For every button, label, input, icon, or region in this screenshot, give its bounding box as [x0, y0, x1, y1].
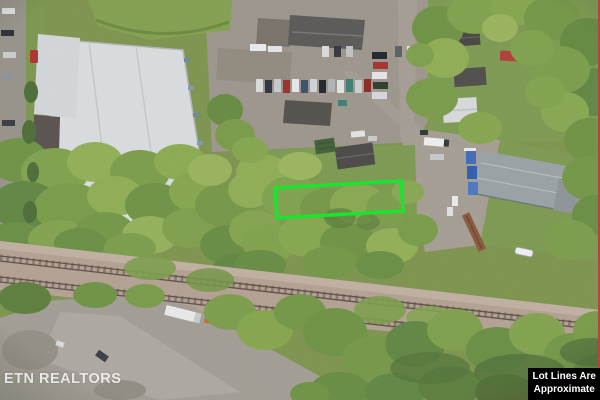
- aerial-photo-svg: [0, 0, 600, 400]
- lot-disclaimer-badge: Lot Lines Are Approximate: [528, 368, 600, 400]
- grain-overlay: [0, 0, 600, 400]
- disclaimer-line-2: Approximate: [532, 384, 596, 397]
- aerial-photo: ETN REALTORS Lot Lines Are Approximate: [0, 0, 600, 400]
- watermark: ETN REALTORS: [4, 371, 121, 387]
- disclaimer-line-1: Lot Lines Are: [532, 371, 596, 384]
